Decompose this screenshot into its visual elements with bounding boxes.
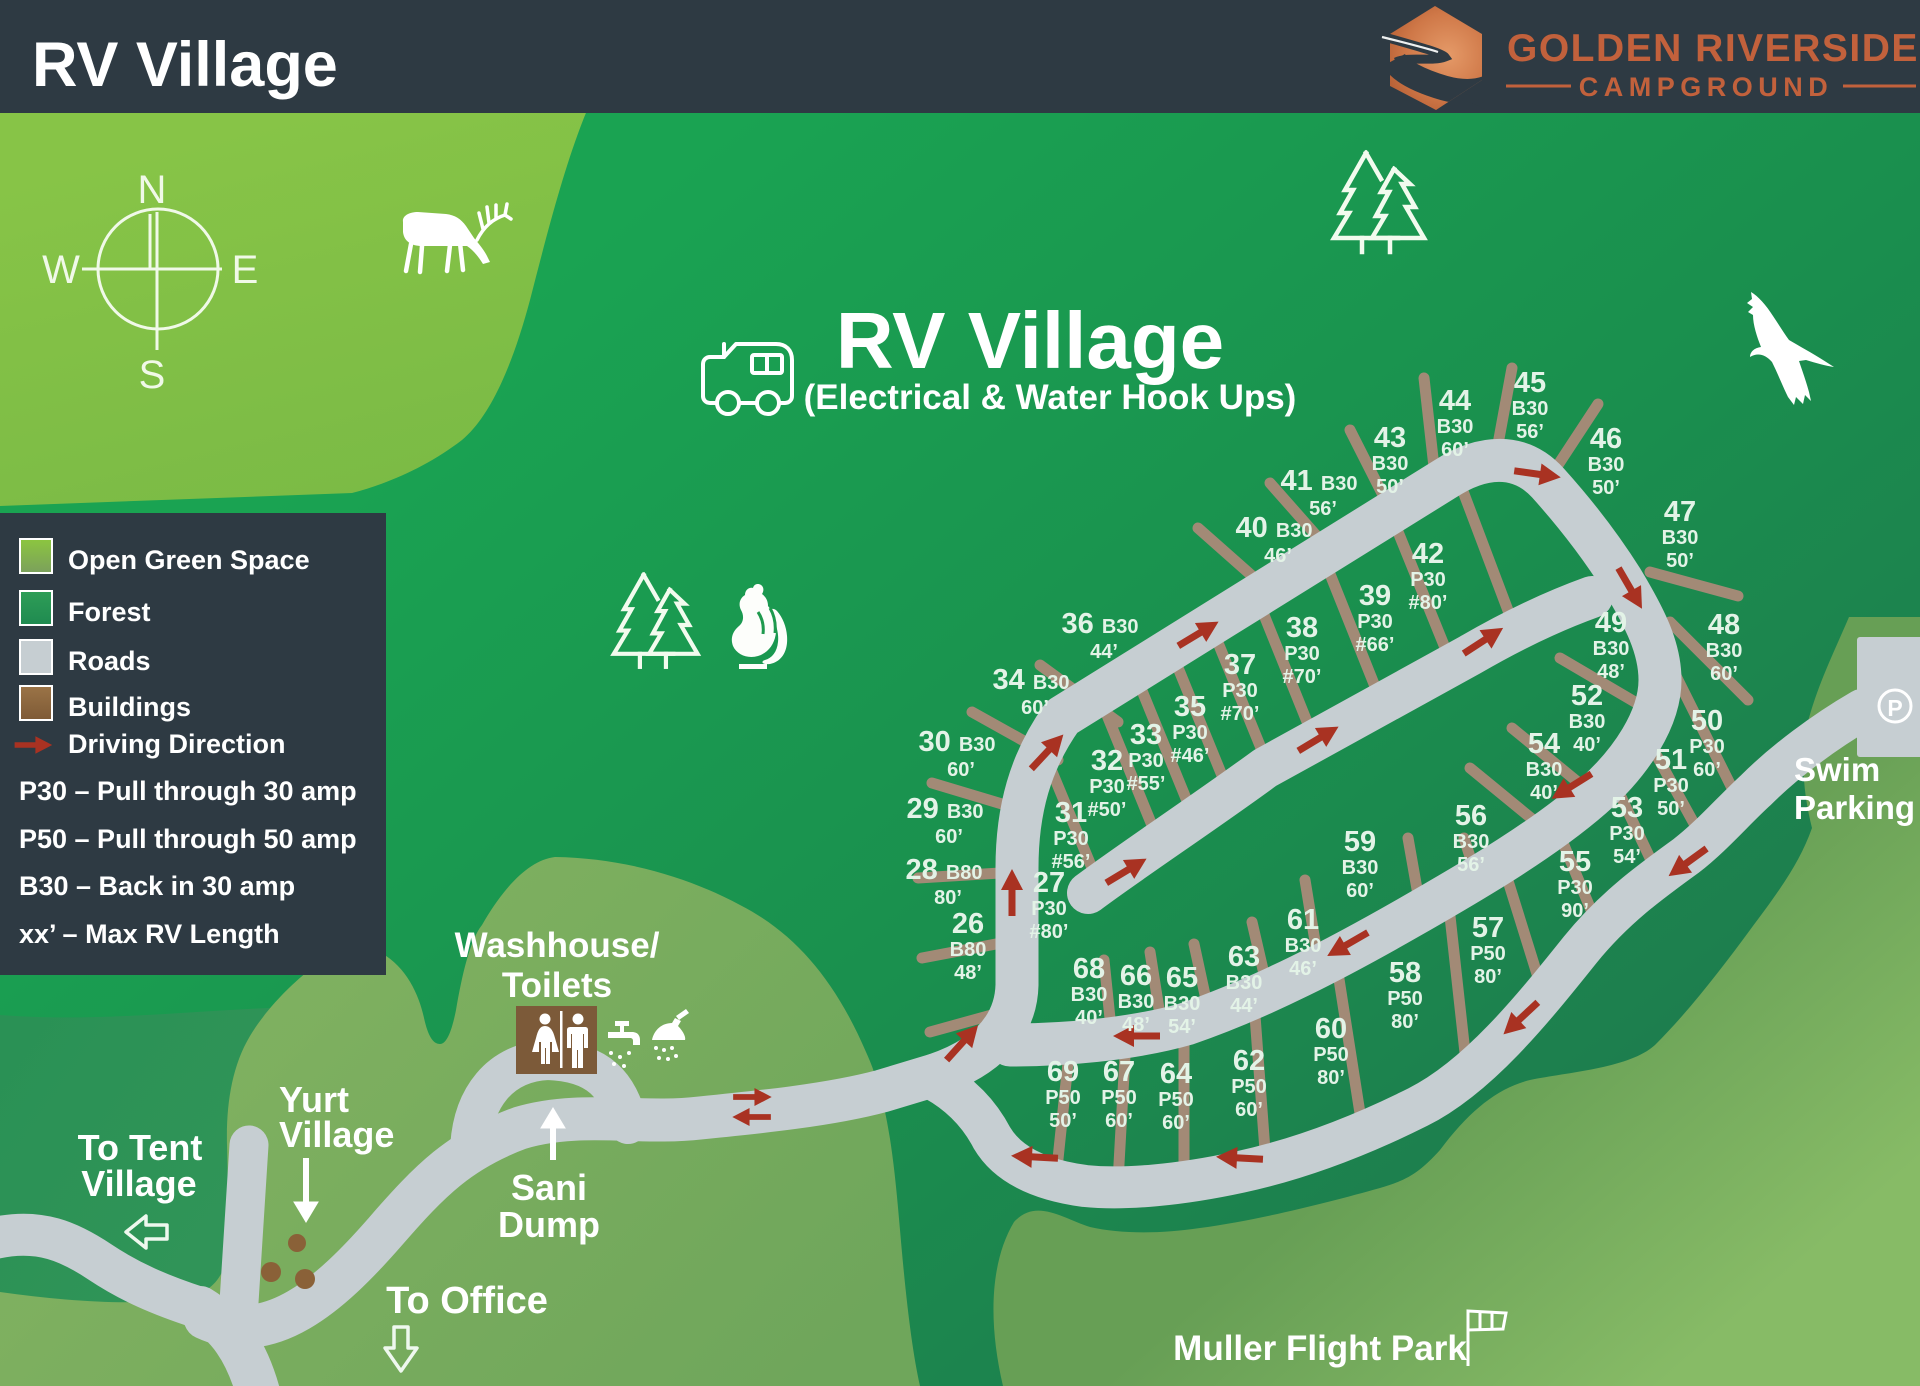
svg-text:80’: 80’ (1474, 966, 1502, 988)
svg-text:54’: 54’ (1613, 846, 1641, 868)
svg-text:46: 46 (1590, 423, 1622, 455)
svg-text:48: 48 (1708, 609, 1740, 641)
svg-text:44: 44 (1439, 385, 1471, 417)
svg-text:B30: B30 (1118, 991, 1155, 1013)
svg-text:46’: 46’ (1264, 545, 1292, 567)
svg-text:57: 57 (1472, 912, 1504, 944)
svg-text:CAMPGROUND: CAMPGROUND (1579, 72, 1834, 102)
svg-text:60’: 60’ (1693, 759, 1721, 781)
svg-text:Village: Village (81, 1163, 196, 1204)
svg-text:46’: 46’ (1289, 958, 1317, 980)
svg-text:50’: 50’ (1657, 798, 1685, 820)
svg-text:B30: B30 (1437, 416, 1474, 438)
svg-text:62: 62 (1233, 1045, 1265, 1077)
svg-text:56: 56 (1455, 800, 1487, 832)
svg-text:Dump: Dump (498, 1204, 600, 1245)
svg-text:50’: 50’ (1049, 1110, 1077, 1132)
svg-text:39: 39 (1359, 580, 1391, 612)
svg-text:P50: P50 (1158, 1089, 1194, 1111)
svg-text:P50: P50 (1101, 1087, 1137, 1109)
svg-text:61: 61 (1287, 904, 1319, 936)
svg-text:40’: 40’ (1530, 782, 1558, 804)
svg-text:P50: P50 (1231, 1076, 1267, 1098)
svg-text:Parking: Parking (1794, 789, 1915, 826)
svg-text:Muller Flight Park: Muller Flight Park (1173, 1329, 1467, 1368)
svg-text:#80’: #80’ (1030, 921, 1069, 943)
svg-text:P30: P30 (1172, 722, 1208, 744)
svg-text:P30 – Pull through 30 amp: P30 – Pull through 30 amp (19, 776, 357, 806)
svg-text:P30: P30 (1089, 776, 1125, 798)
svg-text:60’: 60’ (1021, 697, 1049, 719)
svg-text:53: 53 (1611, 792, 1643, 824)
svg-text:31: 31 (1055, 797, 1087, 829)
svg-text:Buildings: Buildings (68, 692, 191, 722)
svg-text:B30 – Back in 30 amp: B30 – Back in 30 amp (19, 871, 295, 901)
svg-text:54’: 54’ (1168, 1016, 1196, 1038)
svg-text:51: 51 (1655, 744, 1687, 776)
svg-text:Village: Village (279, 1114, 394, 1155)
svg-text:P50: P50 (1387, 988, 1423, 1010)
svg-text:40’: 40’ (1075, 1007, 1103, 1029)
svg-text:60’: 60’ (1710, 663, 1738, 685)
svg-text:P30: P30 (1222, 680, 1258, 702)
svg-text:Forest: Forest (68, 597, 151, 627)
svg-text:50’: 50’ (1592, 477, 1620, 499)
svg-text:52: 52 (1571, 680, 1603, 712)
svg-text:48’: 48’ (1122, 1014, 1150, 1036)
svg-text:45: 45 (1514, 367, 1546, 399)
svg-text:56’: 56’ (1516, 421, 1544, 443)
svg-text:55: 55 (1559, 846, 1591, 878)
svg-text:60’: 60’ (1346, 880, 1374, 902)
svg-text:60’: 60’ (1441, 439, 1469, 461)
svg-text:44’: 44’ (1090, 641, 1118, 663)
svg-text:60’: 60’ (935, 826, 963, 848)
svg-text:P30: P30 (1653, 775, 1689, 797)
svg-text:44’: 44’ (1230, 995, 1258, 1017)
svg-text:80’: 80’ (934, 887, 962, 909)
svg-text:P50: P50 (1045, 1087, 1081, 1109)
svg-text:P50: P50 (1313, 1044, 1349, 1066)
svg-text:50: 50 (1691, 705, 1723, 737)
svg-text:32: 32 (1091, 745, 1123, 777)
svg-text:Sani: Sani (511, 1167, 587, 1208)
svg-text:P30: P30 (1689, 736, 1725, 758)
svg-text:50’: 50’ (1376, 476, 1404, 498)
svg-text:90’: 90’ (1561, 900, 1589, 922)
svg-text:56’: 56’ (1309, 498, 1337, 520)
svg-text:B30: B30 (1226, 972, 1263, 994)
svg-text:59: 59 (1344, 826, 1376, 858)
svg-text:P30: P30 (1357, 611, 1393, 633)
svg-text:W: W (42, 248, 80, 292)
svg-text:To Office: To Office (386, 1280, 548, 1322)
svg-text:Roads: Roads (68, 646, 151, 676)
svg-text:B30: B30 (1285, 935, 1322, 957)
svg-text:47: 47 (1664, 496, 1696, 528)
svg-text:60’: 60’ (1235, 1099, 1263, 1121)
svg-text:64: 64 (1160, 1058, 1192, 1090)
svg-text:B30: B30 (1453, 831, 1490, 853)
svg-text:B30: B30 (1372, 453, 1409, 475)
svg-text:40’: 40’ (1573, 734, 1601, 756)
svg-text:60’: 60’ (947, 759, 975, 781)
svg-text:49: 49 (1595, 607, 1627, 639)
svg-text:P: P (1887, 695, 1902, 721)
svg-text:60’: 60’ (1162, 1112, 1190, 1134)
svg-text:56’: 56’ (1457, 854, 1485, 876)
svg-text:80’: 80’ (1317, 1067, 1345, 1089)
svg-text:50’: 50’ (1666, 550, 1694, 572)
svg-text:B30: B30 (1569, 711, 1606, 733)
svg-text:#66’: #66’ (1356, 634, 1395, 656)
svg-text:Open Green Space: Open Green Space (68, 545, 310, 575)
svg-text:33: 33 (1130, 719, 1162, 751)
svg-text:(Electrical & Water Hook Ups): (Electrical & Water Hook Ups) (804, 378, 1297, 417)
svg-text:54: 54 (1528, 728, 1560, 760)
svg-text:38: 38 (1286, 612, 1318, 644)
svg-text:E: E (232, 248, 259, 292)
svg-text:B30: B30 (1662, 527, 1699, 549)
svg-text:#70’: #70’ (1221, 703, 1260, 725)
svg-text:P30: P30 (1557, 877, 1593, 899)
svg-text:42: 42 (1412, 538, 1444, 570)
svg-text:xx’ – Max RV Length: xx’ – Max RV Length (19, 919, 280, 949)
svg-text:60: 60 (1315, 1013, 1347, 1045)
svg-text:P50 – Pull through 50 amp: P50 – Pull through 50 amp (19, 824, 357, 854)
svg-text:43: 43 (1374, 422, 1406, 454)
svg-text:B30: B30 (1526, 759, 1563, 781)
svg-text:P30: P30 (1284, 643, 1320, 665)
svg-text:69: 69 (1047, 1056, 1079, 1088)
svg-text:GOLDEN RIVERSIDE: GOLDEN RIVERSIDE (1507, 27, 1919, 70)
svg-text:68: 68 (1073, 953, 1105, 985)
svg-text:#56’: #56’ (1052, 851, 1091, 873)
svg-text:S: S (139, 353, 166, 397)
svg-text:RV Village: RV Village (836, 296, 1224, 385)
svg-text:B80: B80 (950, 939, 987, 961)
svg-text:#80’: #80’ (1409, 592, 1448, 614)
svg-text:58: 58 (1389, 957, 1421, 989)
svg-text:60’: 60’ (1105, 1110, 1133, 1132)
svg-text:B30: B30 (1164, 993, 1201, 1015)
svg-text:#50’: #50’ (1088, 799, 1127, 821)
svg-text:#46’: #46’ (1171, 745, 1210, 767)
svg-text:26: 26 (952, 908, 984, 940)
svg-text:Swim: Swim (1794, 751, 1880, 788)
svg-text:Toilets: Toilets (502, 966, 612, 1005)
svg-text:B30: B30 (1588, 454, 1625, 476)
svg-text:Washhouse/: Washhouse/ (455, 926, 660, 965)
svg-text:37: 37 (1224, 649, 1256, 681)
svg-text:65: 65 (1166, 962, 1198, 994)
svg-text:63: 63 (1228, 941, 1260, 973)
svg-text:P50: P50 (1470, 943, 1506, 965)
svg-text:P30: P30 (1410, 569, 1446, 591)
svg-text:80’: 80’ (1391, 1011, 1419, 1033)
svg-text:B30: B30 (1593, 638, 1630, 660)
svg-text:B30: B30 (1342, 857, 1379, 879)
svg-text:N: N (138, 168, 167, 212)
svg-text:Driving Direction: Driving Direction (68, 729, 286, 759)
svg-text:B30: B30 (1706, 640, 1743, 662)
svg-text:P30: P30 (1128, 750, 1164, 772)
svg-text:RV Village: RV Village (32, 30, 338, 100)
svg-text:67: 67 (1103, 1056, 1135, 1088)
svg-text:To Tent: To Tent (78, 1127, 203, 1168)
svg-text:#70’: #70’ (1283, 666, 1322, 688)
svg-text:#55’: #55’ (1127, 773, 1166, 795)
svg-text:48’: 48’ (954, 962, 982, 984)
svg-text:B30: B30 (1512, 398, 1549, 420)
svg-text:66: 66 (1120, 960, 1152, 992)
svg-text:P30: P30 (1609, 823, 1645, 845)
svg-text:B30: B30 (1071, 984, 1108, 1006)
svg-text:P30: P30 (1053, 828, 1089, 850)
svg-text:35: 35 (1174, 691, 1206, 723)
svg-text:P30: P30 (1031, 898, 1067, 920)
